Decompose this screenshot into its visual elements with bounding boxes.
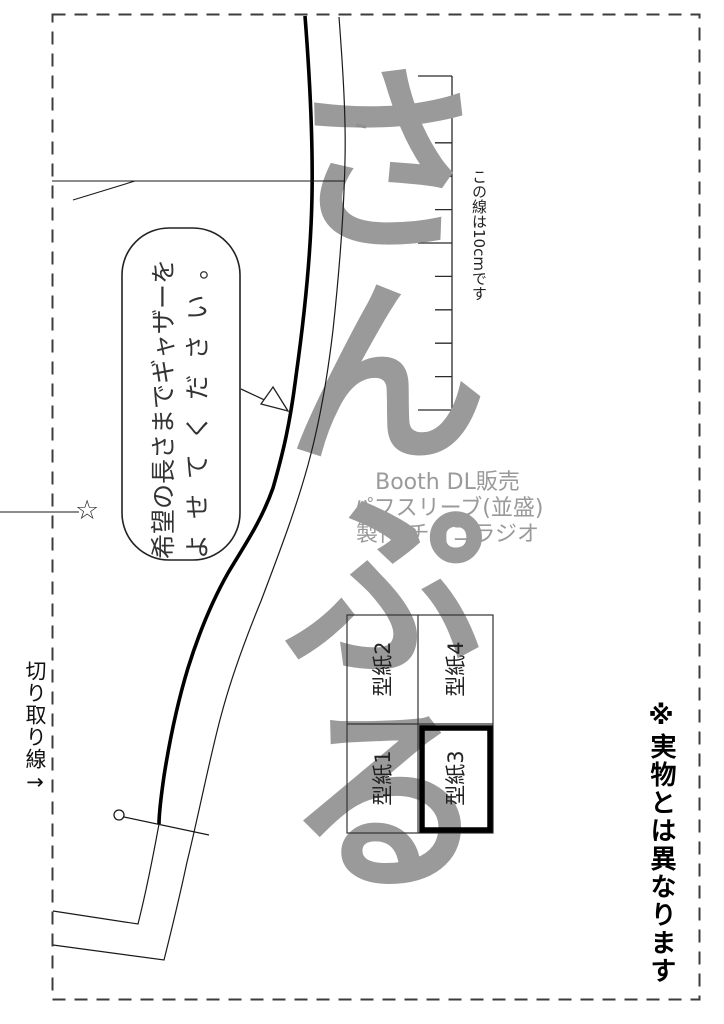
ruler-label: この線は10cmです <box>469 169 490 301</box>
cut-line-label: 切り取り線→ <box>20 660 50 795</box>
disclaimer-text: ※実物とは異なります <box>643 701 680 985</box>
notch-diagonal <box>73 181 135 200</box>
piece-label-1: 型紙1 <box>367 750 397 805</box>
piece-label-3: 型紙3 <box>440 750 470 805</box>
marker-circle <box>114 810 124 820</box>
curve-notch <box>356 125 366 127</box>
star-icon: ☆ <box>75 497 99 524</box>
bubble-tail-arrow <box>261 387 288 411</box>
pattern-sheet-page: Booth DL販売 パフスリーブ(並盛) 製作:チョコラジオ さんぷる <box>0 0 724 1024</box>
piece-label-2: 型紙2 <box>367 641 397 696</box>
bubble-note-line2: よせてください。 <box>181 229 215 559</box>
bubble-note: 希望の長さまでギャザーを よせてください。 <box>147 229 215 559</box>
piece-label-4: 型紙4 <box>440 641 470 696</box>
seam-line-thin <box>53 824 159 924</box>
bubble-note-line1: 希望の長さまでギャザーを <box>147 229 181 559</box>
pattern-linework <box>0 0 724 1024</box>
